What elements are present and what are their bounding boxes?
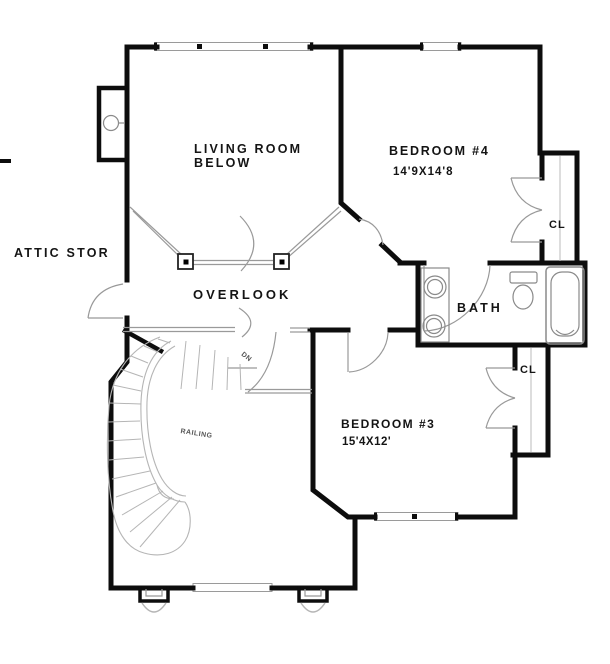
stair-outer-curve <box>107 337 160 553</box>
floor-plan-drawing <box>0 0 610 664</box>
newel-posts <box>178 254 289 269</box>
toilet <box>510 272 537 309</box>
label-living-room-below: BELOW <box>194 156 252 170</box>
label-bedroom4: BEDROOM #4 <box>389 144 490 158</box>
overlook-swing-arcs <box>228 216 276 392</box>
label-bedroom4-dims: 14'9X14'8 <box>393 166 454 178</box>
closet-bedroom3-doors <box>486 368 515 428</box>
window-bedroom4 <box>421 43 461 51</box>
label-living-room: LIVING ROOM <box>194 142 302 156</box>
bedroom3-door <box>348 333 388 372</box>
label-overlook: OVERLOOK <box>193 287 291 302</box>
closet-bedroom4-doors <box>511 178 542 242</box>
window-living-room <box>155 43 313 51</box>
window-mullions <box>154 43 461 521</box>
windows <box>154 43 461 592</box>
fireplace <box>99 88 127 160</box>
stair-upper-fan-treads <box>181 341 241 390</box>
stair-bullnose <box>144 502 190 555</box>
attic-door <box>88 284 123 318</box>
opening-porch <box>193 584 272 592</box>
label-bedroom3-dims: 15'4X12' <box>342 436 391 448</box>
label-bath: BATH <box>457 301 503 315</box>
bedroom4-door <box>359 219 383 245</box>
staircase <box>107 337 241 555</box>
flue-circle <box>104 116 119 131</box>
floor-plan: LIVING ROOM BELOW BEDROOM #4 14'9X14'8 A… <box>0 0 610 664</box>
stair-railing-curve <box>147 346 186 496</box>
label-closet-bedroom3: CL <box>520 364 537 376</box>
label-attic-storage: ATTIC STOR <box>14 246 110 260</box>
label-bedroom3: BEDROOM #3 <box>341 417 435 431</box>
label-closet-bedroom4: CL <box>549 219 566 231</box>
bathtub <box>546 267 584 344</box>
